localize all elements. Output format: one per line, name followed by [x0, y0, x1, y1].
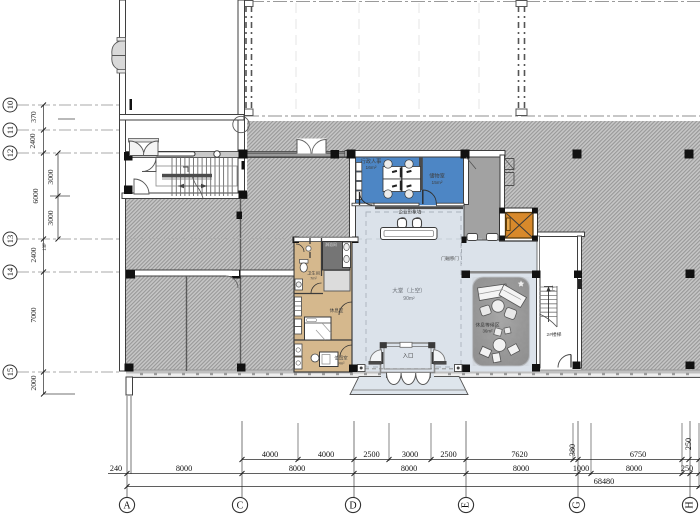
- svg-text:2#楼梯: 2#楼梯: [547, 331, 562, 338]
- svg-text:3000: 3000: [46, 210, 55, 225]
- svg-text:250: 250: [684, 438, 693, 450]
- svg-text:休息室: 休息室: [330, 307, 344, 314]
- svg-text:上: 上: [550, 284, 555, 292]
- svg-text:14: 14: [5, 267, 15, 276]
- svg-text:15: 15: [5, 368, 15, 377]
- svg-text:C: C: [237, 501, 244, 512]
- svg-text:7000: 7000: [29, 307, 38, 322]
- svg-text:E: E: [461, 502, 472, 508]
- svg-text:D: D: [349, 501, 356, 512]
- svg-text:11: 11: [5, 126, 15, 134]
- svg-text:H: H: [685, 501, 696, 508]
- svg-text:8000: 8000: [289, 464, 305, 473]
- svg-text:12: 12: [5, 149, 15, 158]
- svg-text:7620: 7620: [511, 450, 527, 459]
- svg-text:240: 240: [110, 464, 122, 473]
- svg-text:36m²: 36m²: [482, 329, 493, 334]
- svg-text:8000: 8000: [176, 464, 192, 473]
- svg-text:4000: 4000: [318, 450, 334, 459]
- svg-text:8000: 8000: [401, 464, 417, 473]
- svg-text:4000: 4000: [262, 450, 278, 459]
- svg-text:2000: 2000: [29, 375, 38, 390]
- svg-text:A: A: [123, 501, 131, 512]
- svg-text:13: 13: [5, 235, 15, 244]
- svg-text:370: 370: [29, 111, 38, 123]
- svg-text:2400: 2400: [29, 247, 38, 262]
- svg-text:13F: 13F: [43, 243, 48, 251]
- svg-text:储物室: 储物室: [429, 172, 445, 180]
- svg-text:3000: 3000: [46, 169, 55, 184]
- svg-text:16m²: 16m²: [366, 165, 377, 171]
- svg-text:3000: 3000: [402, 450, 418, 459]
- svg-text:90m²: 90m²: [403, 296, 415, 302]
- svg-text:入口: 入口: [403, 353, 414, 360]
- svg-text:2500: 2500: [363, 450, 379, 459]
- svg-text:企业形象墙: 企业形象墙: [399, 209, 422, 216]
- svg-text:7m²: 7m²: [310, 276, 317, 281]
- svg-text:10: 10: [5, 101, 15, 110]
- svg-text:行政人事: 行政人事: [361, 157, 382, 165]
- svg-text:1000: 1000: [573, 464, 589, 473]
- svg-text:250: 250: [681, 464, 693, 473]
- svg-text:G: G: [572, 501, 583, 508]
- svg-text:门磁移门: 门磁移门: [441, 255, 459, 262]
- svg-text:休息等候区: 休息等候区: [476, 322, 500, 329]
- svg-text:380: 380: [568, 444, 577, 456]
- svg-text:15m²: 15m²: [432, 180, 443, 186]
- svg-text:2400: 2400: [28, 133, 37, 148]
- svg-text:大堂（上空）: 大堂（上空）: [392, 287, 426, 295]
- svg-text:8000: 8000: [513, 464, 529, 473]
- svg-text:6750: 6750: [630, 450, 646, 459]
- svg-text:淋浴间: 淋浴间: [325, 242, 337, 247]
- svg-text:8000: 8000: [626, 464, 642, 473]
- svg-text:9m²: 9m²: [338, 361, 346, 366]
- svg-text:2500: 2500: [440, 450, 456, 459]
- svg-text:6000: 6000: [31, 188, 40, 203]
- svg-text:68480: 68480: [594, 477, 614, 486]
